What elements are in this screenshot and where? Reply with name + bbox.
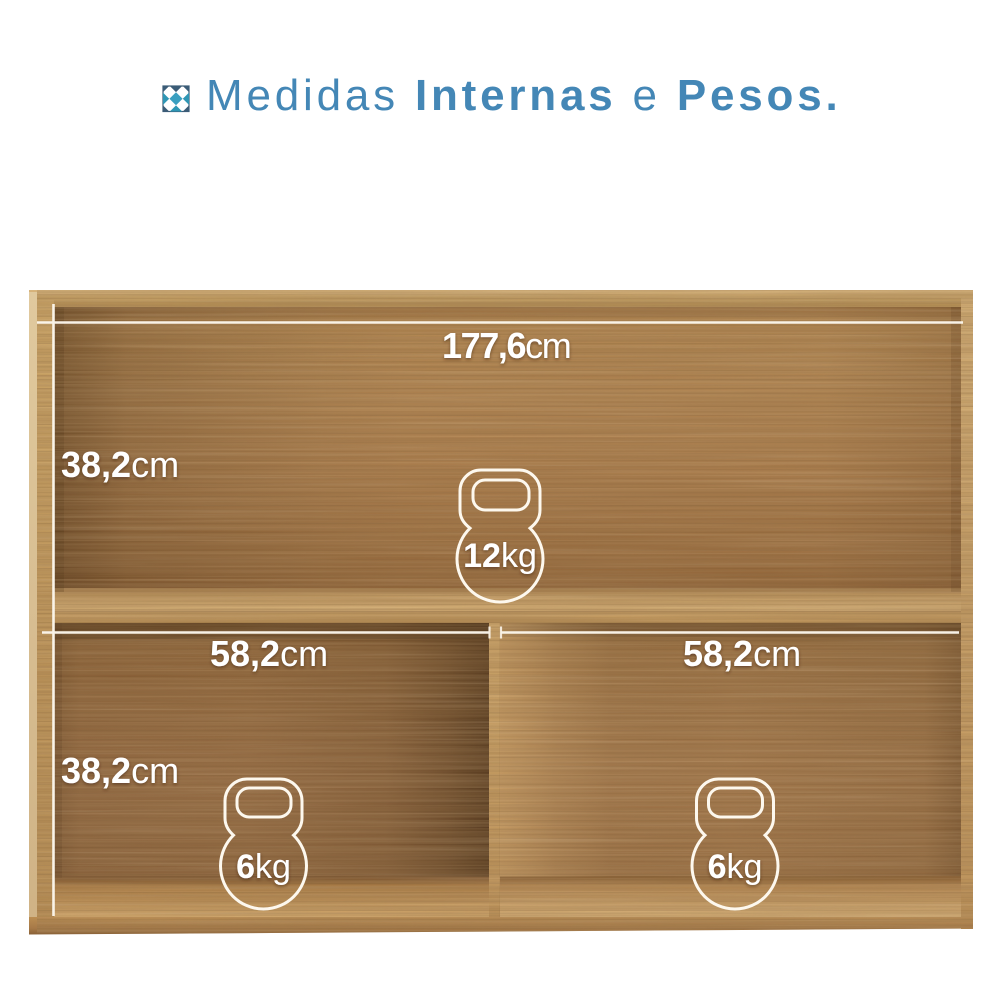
svg-text:58,2cm: 58,2cm bbox=[683, 633, 801, 674]
svg-text:6kg: 6kg bbox=[236, 848, 291, 886]
svg-text:177,6cm: 177,6cm bbox=[442, 325, 570, 366]
svg-text:12kg: 12kg bbox=[463, 537, 537, 575]
svg-text:38,2cm: 38,2cm bbox=[61, 750, 179, 791]
svg-text:Medidas Internas e Pesos.: Medidas Internas e Pesos. bbox=[206, 71, 842, 120]
svg-text:6kg: 6kg bbox=[708, 848, 763, 886]
svg-text:58,2cm: 58,2cm bbox=[210, 633, 328, 674]
svg-text:38,2cm: 38,2cm bbox=[61, 444, 179, 485]
